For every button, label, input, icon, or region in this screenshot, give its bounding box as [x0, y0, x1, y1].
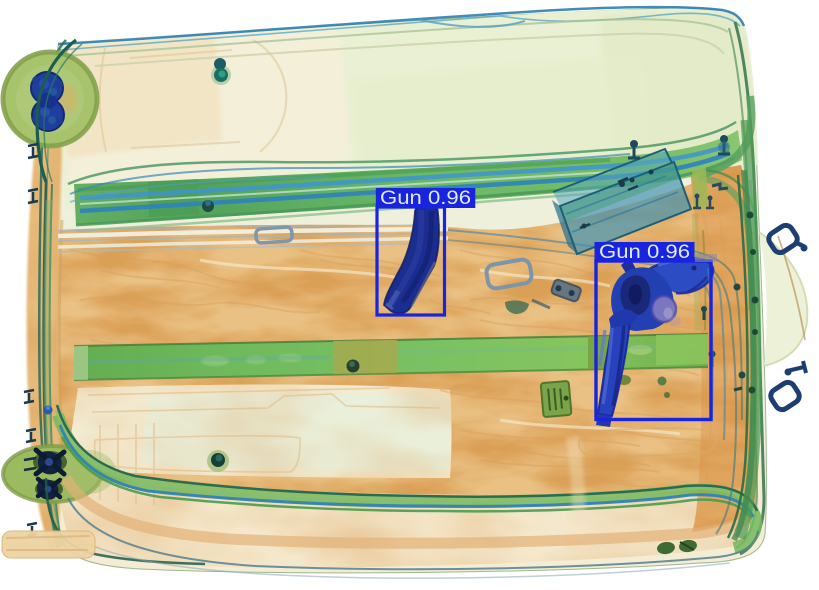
- svg-text:Gun 0.96: Gun 0.96: [380, 188, 471, 209]
- svg-text:Gun 0.96: Gun 0.96: [599, 242, 690, 263]
